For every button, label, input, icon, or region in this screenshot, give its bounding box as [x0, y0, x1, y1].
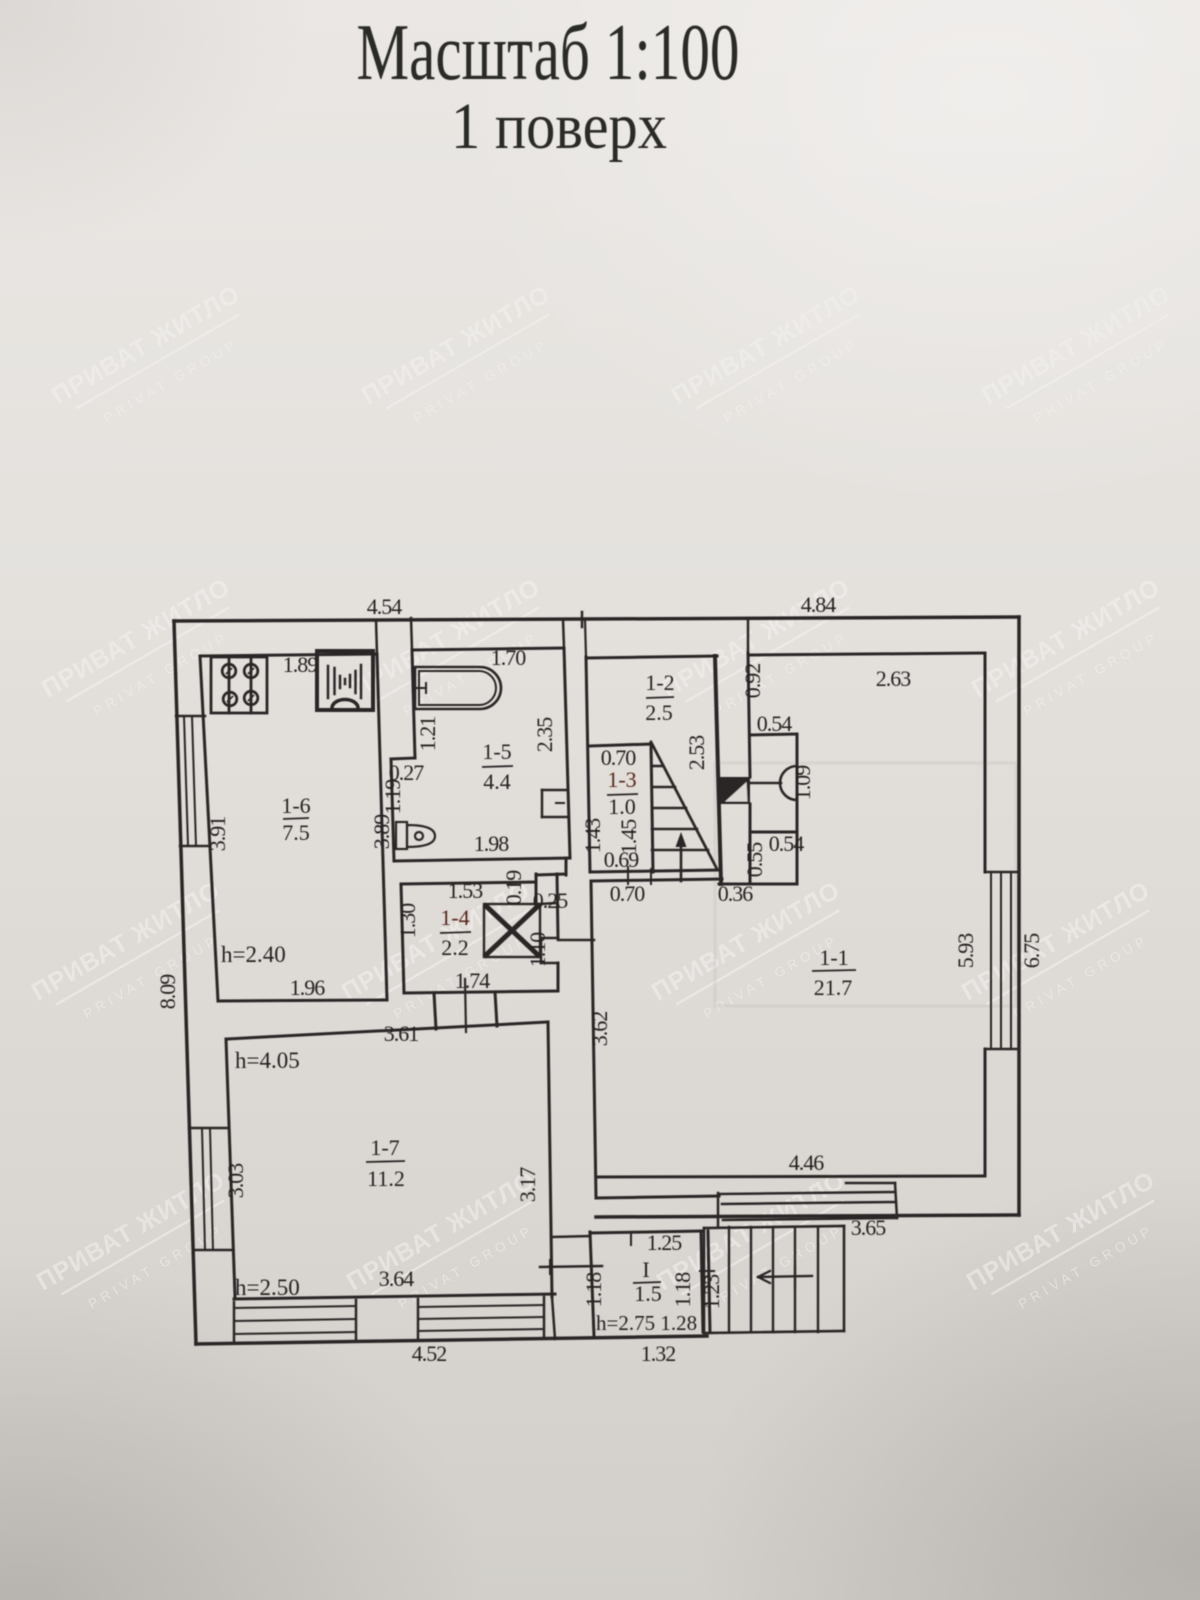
- svg-text:4.46: 4.46: [789, 1150, 825, 1175]
- svg-text:0.92: 0.92: [740, 664, 765, 699]
- svg-text:2.35: 2.35: [532, 717, 557, 753]
- svg-text:1.53: 1.53: [448, 878, 484, 903]
- svg-text:1.98: 1.98: [474, 831, 510, 856]
- svg-text:1-7: 1-7: [370, 1135, 399, 1160]
- svg-text:0.70: 0.70: [601, 745, 637, 770]
- svg-text:3.03: 3.03: [223, 1163, 248, 1199]
- svg-text:3.61: 3.61: [384, 1021, 419, 1046]
- svg-text:1.89: 1.89: [283, 652, 319, 677]
- svg-text:3.64: 3.64: [379, 1266, 415, 1291]
- svg-text:2.5: 2.5: [645, 700, 673, 725]
- svg-text:21.7: 21.7: [814, 975, 853, 1000]
- svg-text:1-1: 1-1: [819, 945, 848, 970]
- svg-text:3.91: 3.91: [205, 817, 230, 852]
- svg-text:3.62: 3.62: [587, 1012, 612, 1047]
- svg-text:1.0: 1.0: [608, 794, 636, 819]
- svg-text:4.84: 4.84: [801, 592, 837, 617]
- svg-text:11.2: 11.2: [367, 1166, 405, 1191]
- svg-text:1.25: 1.25: [647, 1230, 683, 1255]
- svg-text:0.36: 0.36: [718, 881, 754, 906]
- svg-text:1.32: 1.32: [641, 1341, 676, 1366]
- svg-text:8.09: 8.09: [155, 974, 180, 1010]
- svg-text:1.18: 1.18: [581, 1272, 606, 1308]
- svg-text:2.2: 2.2: [441, 935, 469, 960]
- svg-text:0.25: 0.25: [533, 888, 569, 913]
- svg-text:0.54: 0.54: [757, 711, 793, 736]
- svg-text:1.10: 1.10: [525, 932, 550, 968]
- svg-text:Масштаб 1:100: Масштаб 1:100: [357, 9, 740, 97]
- svg-text:3.65: 3.65: [851, 1215, 887, 1240]
- svg-text:4.4: 4.4: [483, 769, 511, 794]
- svg-text:h=2.50: h=2.50: [235, 1275, 300, 1300]
- svg-text:3.89: 3.89: [369, 814, 394, 850]
- svg-text:0.54: 0.54: [769, 831, 805, 856]
- svg-text:I: I: [642, 1257, 649, 1282]
- svg-text:0.70: 0.70: [610, 881, 646, 906]
- svg-text:0.55: 0.55: [742, 842, 767, 878]
- svg-text:1.21: 1.21: [415, 717, 440, 752]
- svg-text:7.5: 7.5: [282, 820, 310, 845]
- svg-text:1.09: 1.09: [790, 765, 815, 801]
- svg-text:5.93: 5.93: [953, 933, 978, 969]
- svg-text:1.23: 1.23: [699, 1274, 724, 1310]
- svg-text:1.96: 1.96: [290, 975, 326, 1000]
- svg-text:4.52: 4.52: [412, 1341, 447, 1366]
- svg-text:1.18: 1.18: [670, 1272, 695, 1308]
- svg-text:1-3: 1-3: [607, 767, 636, 792]
- svg-text:6.75: 6.75: [1019, 933, 1044, 969]
- svg-text:4.54: 4.54: [367, 594, 403, 619]
- svg-text:1.19: 1.19: [380, 779, 405, 815]
- svg-text:h=4.05: h=4.05: [235, 1048, 300, 1073]
- svg-text:1-4: 1-4: [440, 905, 469, 930]
- svg-text:1.70: 1.70: [491, 645, 527, 670]
- svg-text:0.19: 0.19: [501, 870, 526, 906]
- svg-text:1-2: 1-2: [645, 670, 674, 695]
- svg-text:1.45: 1.45: [616, 819, 641, 855]
- svg-text:h=2.40: h=2.40: [221, 942, 286, 967]
- svg-text:1-6: 1-6: [281, 793, 310, 818]
- svg-text:h=2.75 1.28: h=2.75 1.28: [596, 1311, 697, 1335]
- svg-text:1.5: 1.5: [634, 1281, 662, 1306]
- svg-text:2.53: 2.53: [684, 735, 709, 771]
- svg-text:1.43: 1.43: [580, 818, 605, 854]
- svg-text:1-5: 1-5: [482, 739, 511, 764]
- svg-text:2.63: 2.63: [876, 666, 912, 691]
- svg-text:1 поверх: 1 поверх: [451, 90, 667, 163]
- svg-text:3.17: 3.17: [515, 1167, 540, 1203]
- svg-text:1.30: 1.30: [395, 903, 420, 939]
- svg-text:1.74: 1.74: [455, 968, 491, 993]
